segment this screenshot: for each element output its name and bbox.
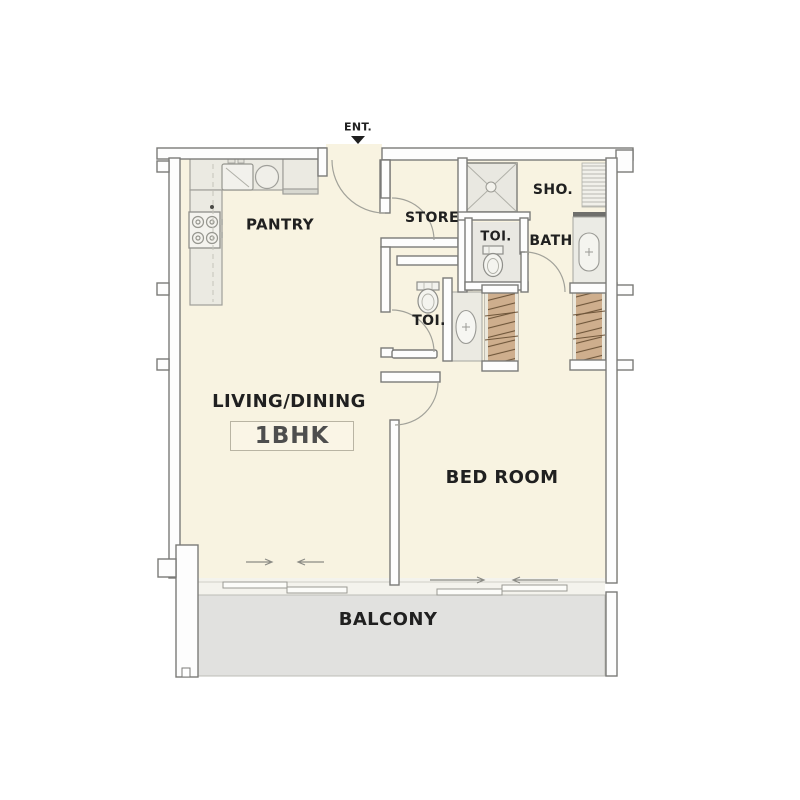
room-label-bath: BATH [529,234,572,248]
unit-type-label: 1BHK [255,425,330,448]
toilet-icon [483,246,503,277]
room-label-pantry: PANTRY [246,218,314,233]
room-label-shower: SHO. [533,183,573,197]
entrance-arrow-icon [351,136,365,144]
shelf-band-icon [582,163,606,207]
entrance-label: ENT. [344,122,372,133]
shower-tray-icon [465,163,517,212]
wardrobe-icon [573,293,605,360]
bathtub-icon [573,212,606,283]
cooktop-icon [256,166,279,189]
floor-plan-drawing [0,0,800,800]
room-label-toilet-upper: TOI. [480,231,511,244]
toilet-icon [417,282,439,313]
stove-icon [189,205,223,248]
floor-plan-page: ENT. PANTRY STORE SHO. TOI. BATH TOI. LI… [0,0,800,800]
unit-type-box: 1BHK [230,421,354,451]
room-label-store: STORE [405,211,459,225]
room-label-toilet-mid: TOI. [412,314,446,328]
room-label-bedroom: BED ROOM [446,469,559,487]
wardrobe-icon [485,293,518,361]
room-label-living-dining: LIVING/DINING [212,393,366,411]
washbasin-icon [452,292,482,361]
room-label-balcony: BALCONY [339,611,438,629]
pillar-notch [182,668,190,677]
